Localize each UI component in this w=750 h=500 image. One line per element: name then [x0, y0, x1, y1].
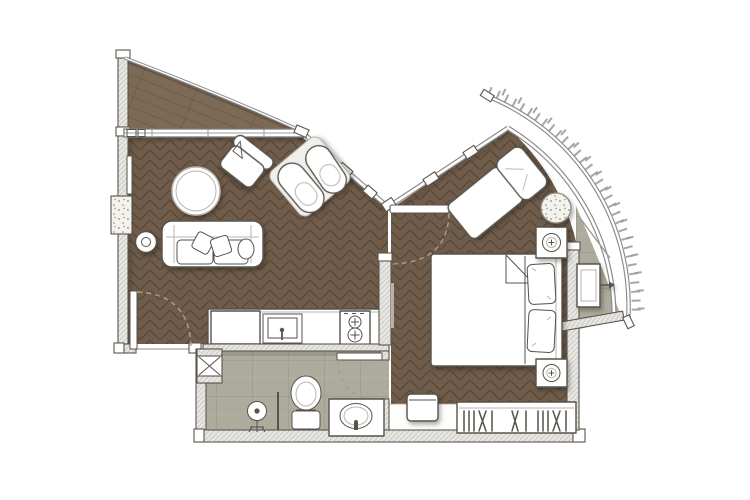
sofa-round-pillow [238, 239, 254, 259]
bottom-wall-cap-left [194, 429, 204, 442]
sofa [162, 221, 263, 267]
arc-cap-bottom [623, 315, 635, 329]
nightstand-bottom [536, 359, 567, 387]
kitchen [208, 309, 381, 346]
toilet-tank [292, 411, 320, 429]
shower [248, 402, 267, 433]
bedroom-door-leaf [390, 205, 449, 213]
pillow-1 [527, 263, 556, 304]
window-shadow [126, 137, 304, 144]
shaft-top-band [197, 349, 222, 356]
kitchen-wall-cap [378, 253, 392, 261]
shaft-bottom-band [197, 376, 222, 383]
tv-console [111, 196, 132, 234]
side-table-top [136, 232, 157, 253]
round-table [172, 167, 220, 215]
vanity-counter [329, 399, 384, 436]
side-table [136, 232, 157, 253]
bed [431, 254, 562, 366]
refrigerator [211, 311, 260, 344]
nightstand-top [536, 227, 567, 258]
kitchen-bedroom-wall [379, 259, 391, 345]
shower-head-dot [254, 408, 259, 413]
tv-panel [127, 156, 132, 194]
floor-plan [0, 0, 750, 500]
top-window [124, 129, 304, 137]
entry-cap-left [114, 343, 124, 353]
cooktop [340, 311, 370, 345]
entry-door-leaf [130, 291, 137, 349]
toilet [291, 376, 321, 429]
stool-body [407, 394, 438, 421]
service-shaft [197, 349, 222, 383]
vanity-faucet [354, 423, 358, 430]
arc-cap-top [480, 89, 494, 101]
wardrobe [457, 402, 576, 433]
vanity-faucet-dot [354, 420, 358, 424]
sink-faucet-dot [280, 328, 284, 332]
terrace-left-wall [118, 54, 128, 133]
toilet-bowl [291, 376, 321, 410]
bedroom-side-table [541, 193, 571, 223]
floor-plan-canvas [0, 0, 750, 500]
round-table-top [172, 167, 220, 215]
pocket-rail [391, 283, 394, 328]
bedroom-side-table-top [541, 193, 571, 223]
stool [407, 394, 438, 421]
kitchen-bathroom-wall [203, 344, 389, 351]
terrace-wall-cap [116, 50, 130, 58]
bathroom-door-leaf [337, 353, 382, 360]
vanity [329, 399, 384, 436]
pillow-2 [527, 309, 556, 352]
